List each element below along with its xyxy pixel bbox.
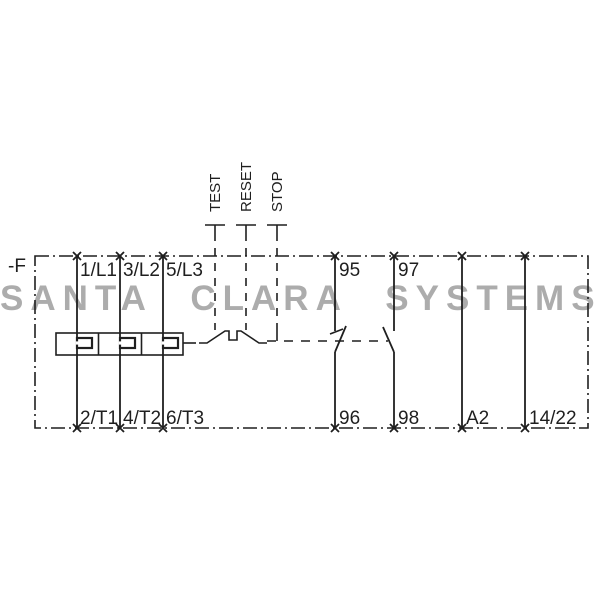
terminal-label-4T2: 4/T2: [123, 408, 161, 429]
actuator-rods: [215, 233, 277, 341]
no-contact-97-98: [383, 257, 394, 427]
stop-button-icon: [267, 225, 287, 233]
heater-slot: [162, 341, 173, 344]
terminal-label-1422: 14/22: [529, 408, 577, 429]
terminal-label-96: 96: [339, 408, 360, 429]
heater-slot: [119, 341, 130, 344]
terminal-label-95: 95: [339, 260, 360, 281]
trip-mechanism-icon: [199, 331, 267, 343]
stop-label: STOP: [269, 171, 286, 212]
device-label: -F: [8, 256, 26, 277]
terminal-label-a2: A2: [466, 408, 489, 429]
control-actuators: [205, 225, 287, 233]
terminal-label-1L1: 1/L1: [80, 260, 117, 281]
top-terminal-labels: 1/L1 3/L2 5/L3 95 97: [80, 260, 419, 281]
terminal-label-2T1: 2/T1: [80, 408, 118, 429]
auxiliary-conductors: [462, 257, 525, 427]
bottom-terminal-labels: 2/T1 4/T2 6/T3 96 98 A2 14/22: [80, 408, 577, 429]
control-labels: TEST RESET STOP: [207, 162, 286, 212]
frame-border: [35, 256, 588, 428]
schematic-page: SANTA CLARA SYSTEMS -F TEST RESET STOP: [0, 0, 600, 600]
terminal-label-97: 97: [398, 260, 419, 281]
nc-contact-95-96: [330, 257, 346, 427]
terminal-label-6T3: 6/T3: [166, 408, 204, 429]
reset-button-icon: [236, 225, 256, 233]
terminal-label-5L3: 5/L3: [166, 260, 203, 281]
test-label: TEST: [207, 174, 224, 212]
test-button-icon: [205, 225, 225, 233]
overload-relay-schematic: -F TEST RESET STOP: [0, 0, 600, 600]
reset-label: RESET: [238, 162, 255, 212]
terminal-label-98: 98: [398, 408, 419, 429]
no-contact-blade: [383, 327, 394, 352]
heater-slot: [76, 341, 87, 344]
terminal-label-3L2: 3/L2: [123, 260, 160, 281]
nc-fixed-contact-tick: [330, 329, 343, 334]
